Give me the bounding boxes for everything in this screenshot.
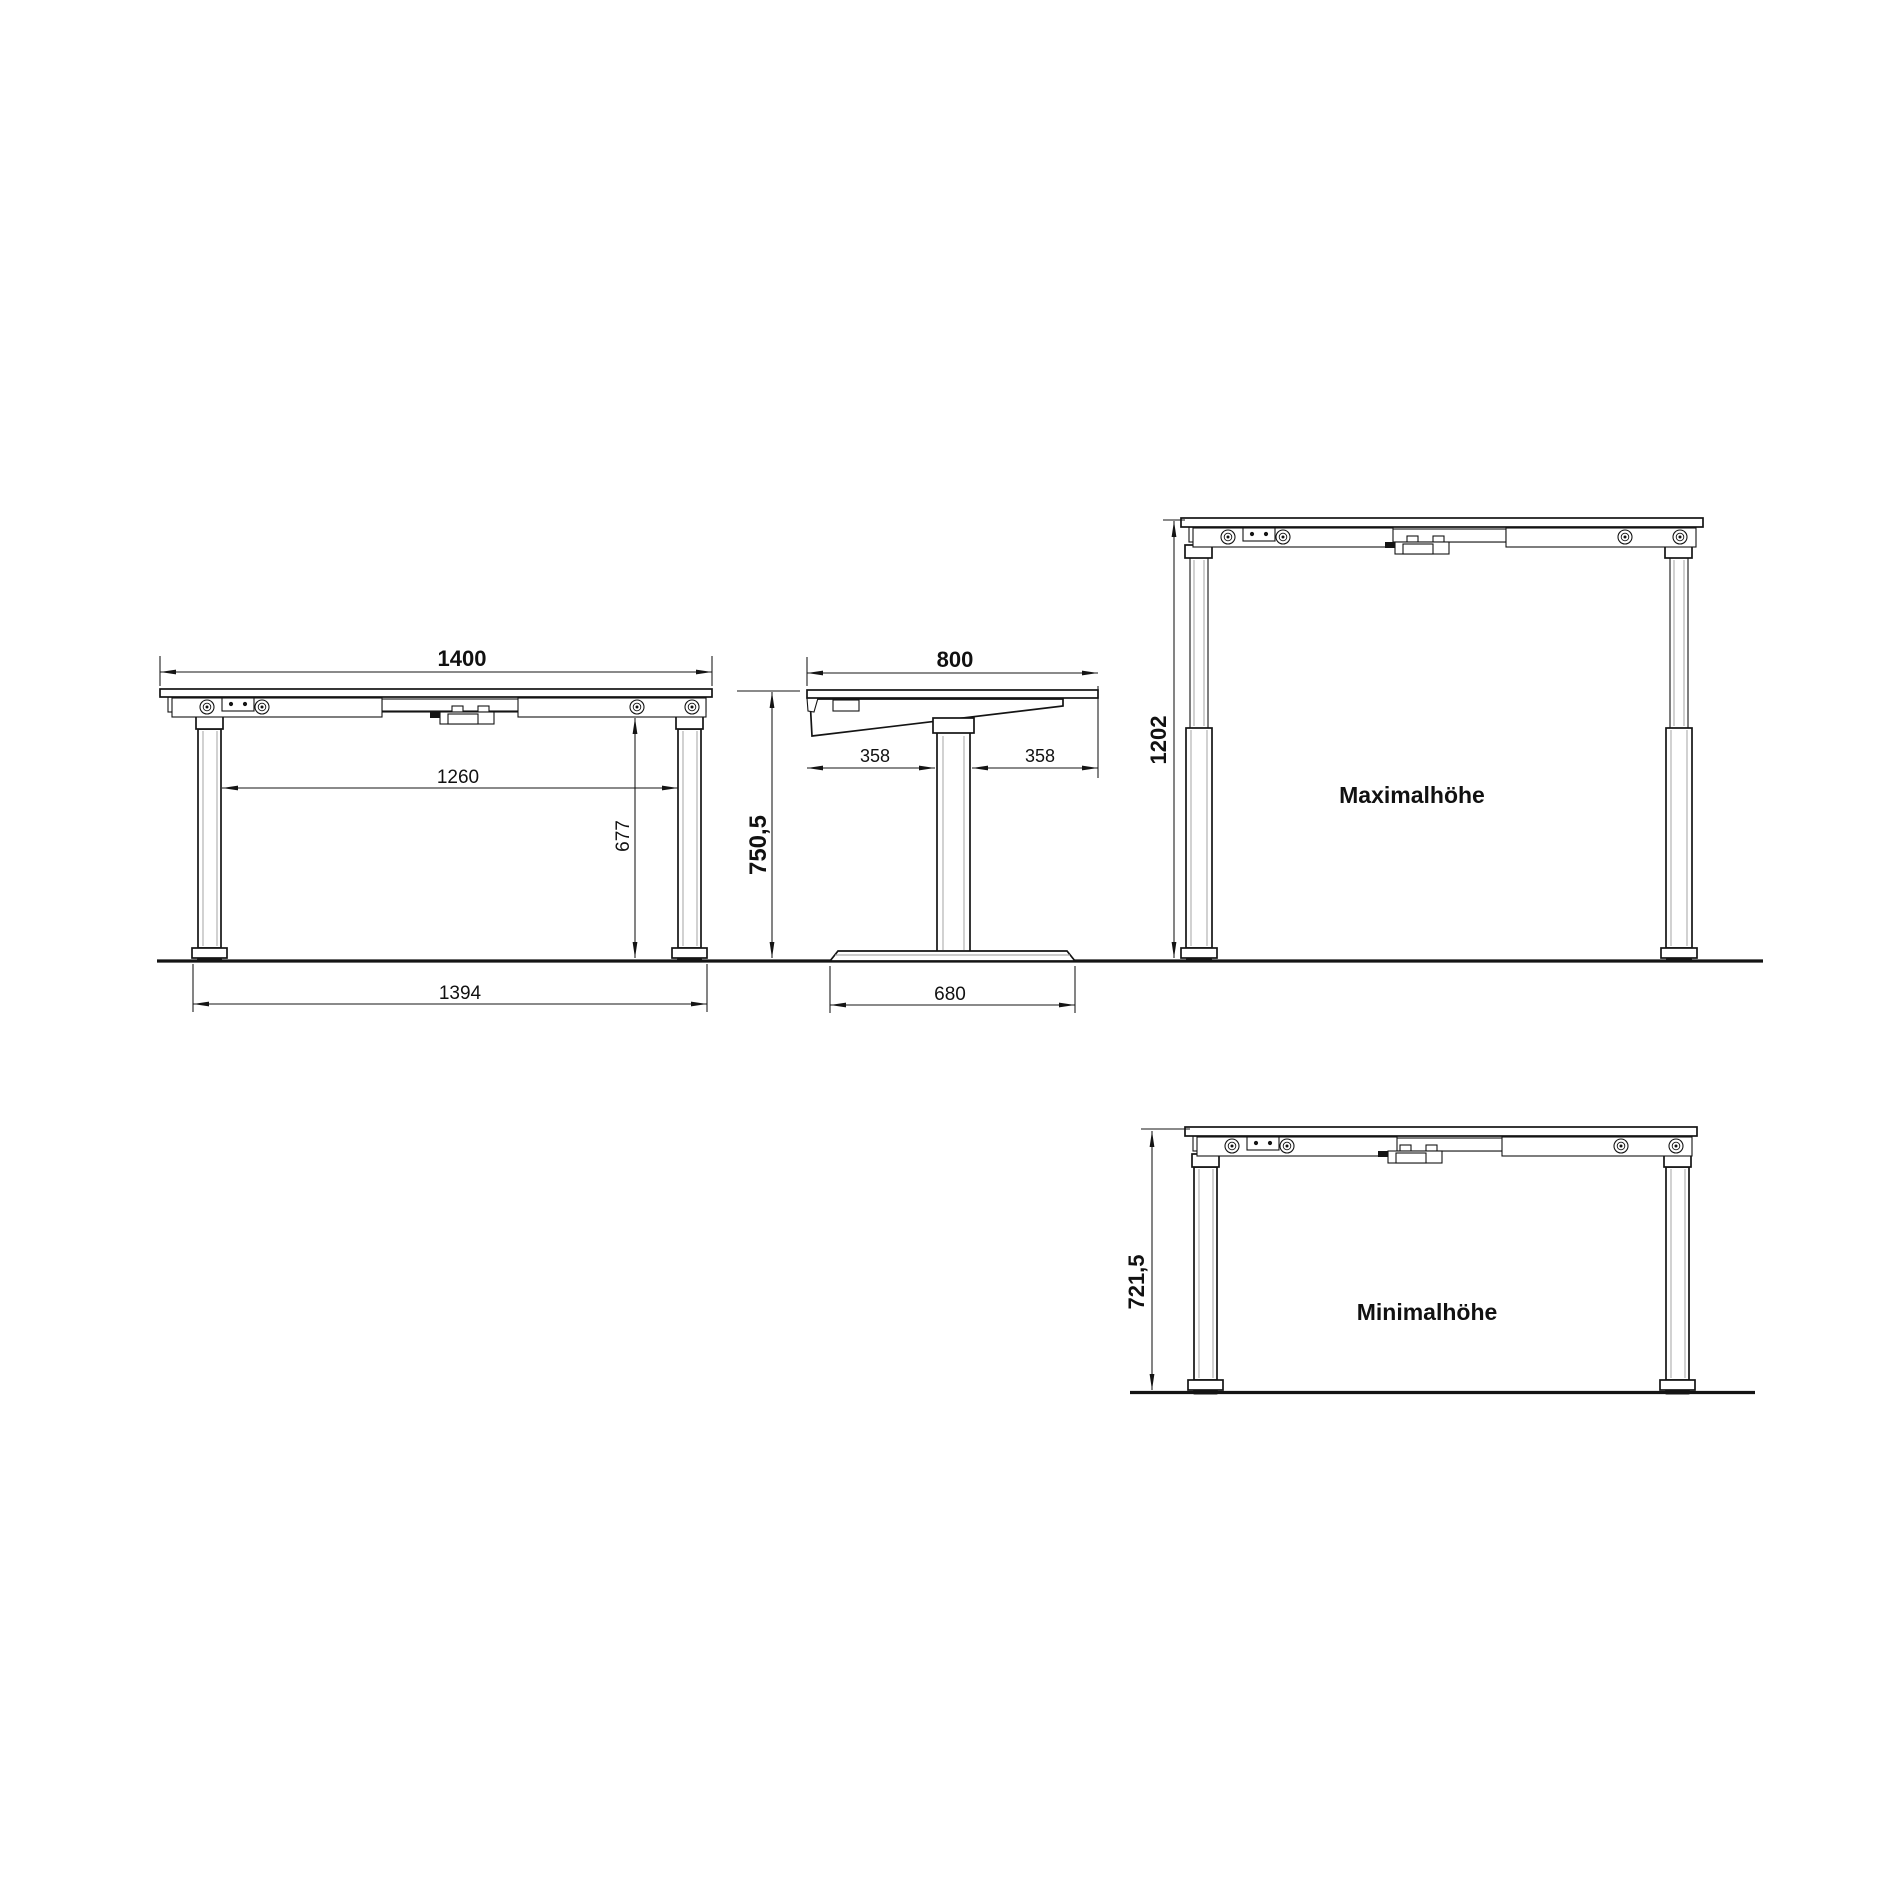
dim-677-label: 677 — [613, 820, 634, 852]
dim-side-total-height: 750,5 — [737, 691, 800, 958]
max-left-leg — [1181, 545, 1217, 963]
min-height-view: 721,5 Minimalhöhe — [1124, 1127, 1697, 1395]
dim-680-label: 680 — [934, 984, 966, 1005]
front-frame-rail — [168, 697, 706, 724]
min-frame-rail — [1193, 1136, 1692, 1163]
min-right-leg — [1660, 1154, 1695, 1395]
dim-side-right-offset: 358 — [972, 746, 1098, 768]
min-left-leg — [1188, 1154, 1223, 1395]
dim-front-frame-height: 677 — [613, 718, 635, 958]
dim-front-top-width: 1400 — [160, 646, 712, 686]
max-tabletop — [1181, 518, 1703, 527]
min-tabletop — [1185, 1127, 1697, 1136]
desk-dimension-drawing: 1400 1260 677 1394 — [0, 0, 1880, 1881]
front-left-leg — [192, 715, 227, 963]
side-tabletop — [807, 690, 1098, 698]
front-right-leg — [672, 715, 707, 963]
min-view-label: Minimalhöhe — [1357, 1299, 1498, 1325]
dim-1400-label: 1400 — [438, 646, 487, 671]
dim-358-right-label: 358 — [1025, 746, 1055, 766]
side-column — [937, 714, 970, 952]
dim-1260-label: 1260 — [437, 767, 479, 788]
dim-front-foot-width: 1394 — [193, 964, 707, 1012]
max-frame-rail — [1189, 527, 1696, 554]
dim-side-left-offset: 358 — [807, 746, 935, 768]
max-view-label: Maximalhöhe — [1339, 782, 1485, 808]
dim-750-5-label: 750,5 — [745, 815, 772, 875]
dim-side-base-depth: 680 — [830, 966, 1075, 1013]
max-height-view: 1202 Maximalhöhe — [1146, 518, 1703, 963]
dim-721-5-label: 721,5 — [1124, 1254, 1149, 1309]
dim-1394-label: 1394 — [439, 983, 482, 1004]
dim-1202-label: 1202 — [1146, 716, 1171, 765]
dim-min-height: 721,5 — [1124, 1129, 1190, 1390]
dim-358-left-label: 358 — [860, 746, 890, 766]
dim-max-height: 1202 — [1146, 520, 1185, 958]
technical-drawing-page: 1400 1260 677 1394 — [0, 0, 1880, 1881]
side-view: 800 358 358 750,5 680 — [737, 647, 1098, 1013]
front-view: 1400 1260 677 1394 — [160, 646, 712, 1012]
max-right-leg — [1661, 545, 1697, 963]
side-column-collar — [933, 718, 974, 733]
front-tabletop — [160, 689, 712, 697]
dim-800-label: 800 — [937, 647, 974, 672]
side-base-foot — [830, 951, 1075, 962]
dim-front-inner-width: 1260 — [222, 767, 678, 788]
